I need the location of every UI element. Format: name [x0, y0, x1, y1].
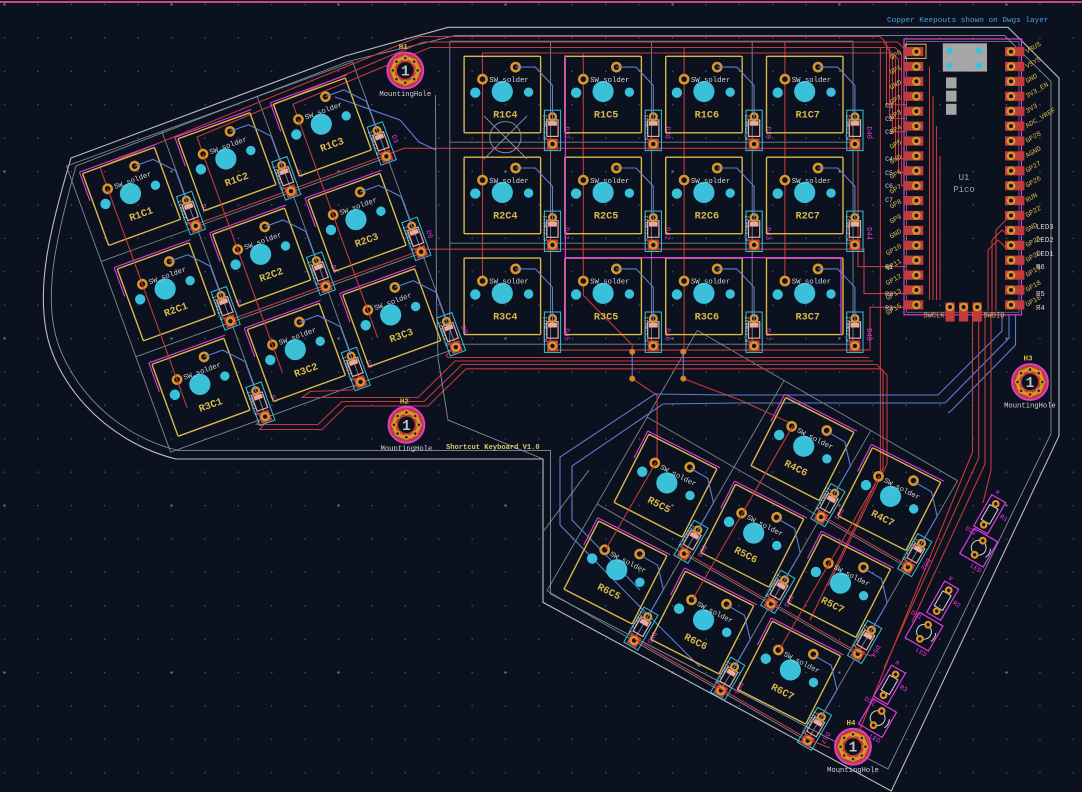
svg-text:C3: C3 [885, 129, 893, 136]
svg-text:MountingHole: MountingHole [379, 91, 431, 99]
svg-text:Pico: Pico [953, 185, 975, 195]
svg-text:R3C4: R3C4 [493, 312, 517, 323]
svg-text:D48: D48 [864, 328, 872, 341]
svg-text:U1: U1 [959, 173, 970, 183]
svg-text:R1: R1 [885, 264, 893, 271]
svg-text:Item12_0: Item12_0 [743, 316, 749, 342]
svg-text:C7: C7 [885, 197, 893, 204]
svg-text:Item12_0: Item12_0 [844, 114, 850, 140]
svg-text:D44: D44 [864, 227, 872, 240]
svg-text:R2C5: R2C5 [594, 211, 618, 222]
svg-text:Item12_0: Item12_0 [542, 316, 548, 342]
svg-text:C1: C1 [885, 102, 893, 109]
svg-text:R1C6: R1C6 [695, 111, 719, 122]
svg-text:Copper Keepouts shown on Dwgs: Copper Keepouts shown on Dwgs layer [887, 17, 1048, 25]
svg-text:SWCLK: SWCLK [923, 313, 945, 321]
svg-text:MountingHole: MountingHole [381, 445, 433, 453]
svg-text:R3C7: R3C7 [795, 312, 819, 323]
svg-text:R2C4: R2C4 [493, 211, 517, 222]
svg-text:R2: R2 [885, 291, 893, 298]
svg-text:R2C6: R2C6 [695, 211, 719, 222]
svg-text:SWDIO: SWDIO [983, 313, 1004, 321]
svg-text:C4: C4 [885, 156, 893, 163]
svg-text:Shortcut Keyboard V1.0: Shortcut Keyboard V1.0 [446, 444, 540, 452]
svg-text:LED2: LED2 [1036, 237, 1054, 245]
svg-text:Item12_0: Item12_0 [844, 316, 850, 342]
svg-text:C2: C2 [885, 116, 893, 123]
svg-text:R2C7: R2C7 [795, 211, 819, 222]
svg-text:Item12_0: Item12_0 [542, 114, 548, 140]
svg-text:R1C7: R1C7 [795, 111, 819, 122]
svg-text:H3: H3 [1023, 356, 1033, 364]
svg-text:Item12_0: Item12_0 [642, 114, 648, 140]
svg-text:MountingHole: MountingHole [1004, 403, 1056, 411]
svg-text:MountingHole: MountingHole [827, 767, 879, 775]
svg-text:Item12_0: Item12_0 [542, 215, 548, 241]
svg-text:C5: C5 [885, 170, 893, 177]
svg-text:Item12_0: Item12_0 [743, 114, 749, 140]
svg-text:LED1: LED1 [1036, 251, 1054, 259]
svg-text:Item12_0: Item12_0 [743, 215, 749, 241]
svg-text:R6: R6 [1036, 264, 1045, 272]
svg-text:Item12_0: Item12_0 [844, 215, 850, 241]
svg-text:R1C4: R1C4 [493, 111, 517, 122]
svg-text:R3: R3 [885, 305, 893, 312]
svg-text:R1C5: R1C5 [594, 111, 618, 122]
svg-text:R5: R5 [1036, 291, 1045, 299]
svg-text:H2: H2 [400, 398, 410, 406]
svg-text:Item12_0: Item12_0 [642, 316, 648, 342]
svg-text:Item12_0: Item12_0 [642, 215, 648, 241]
svg-text:H4: H4 [846, 720, 856, 728]
svg-text:H1: H1 [399, 44, 409, 52]
svg-text:R4: R4 [1036, 305, 1045, 313]
svg-text:R3C5: R3C5 [594, 312, 618, 323]
svg-text:R3C6: R3C6 [695, 312, 719, 323]
svg-text:D40: D40 [864, 126, 872, 139]
svg-text:C6: C6 [885, 183, 893, 190]
svg-text:LED3: LED3 [1036, 224, 1054, 232]
